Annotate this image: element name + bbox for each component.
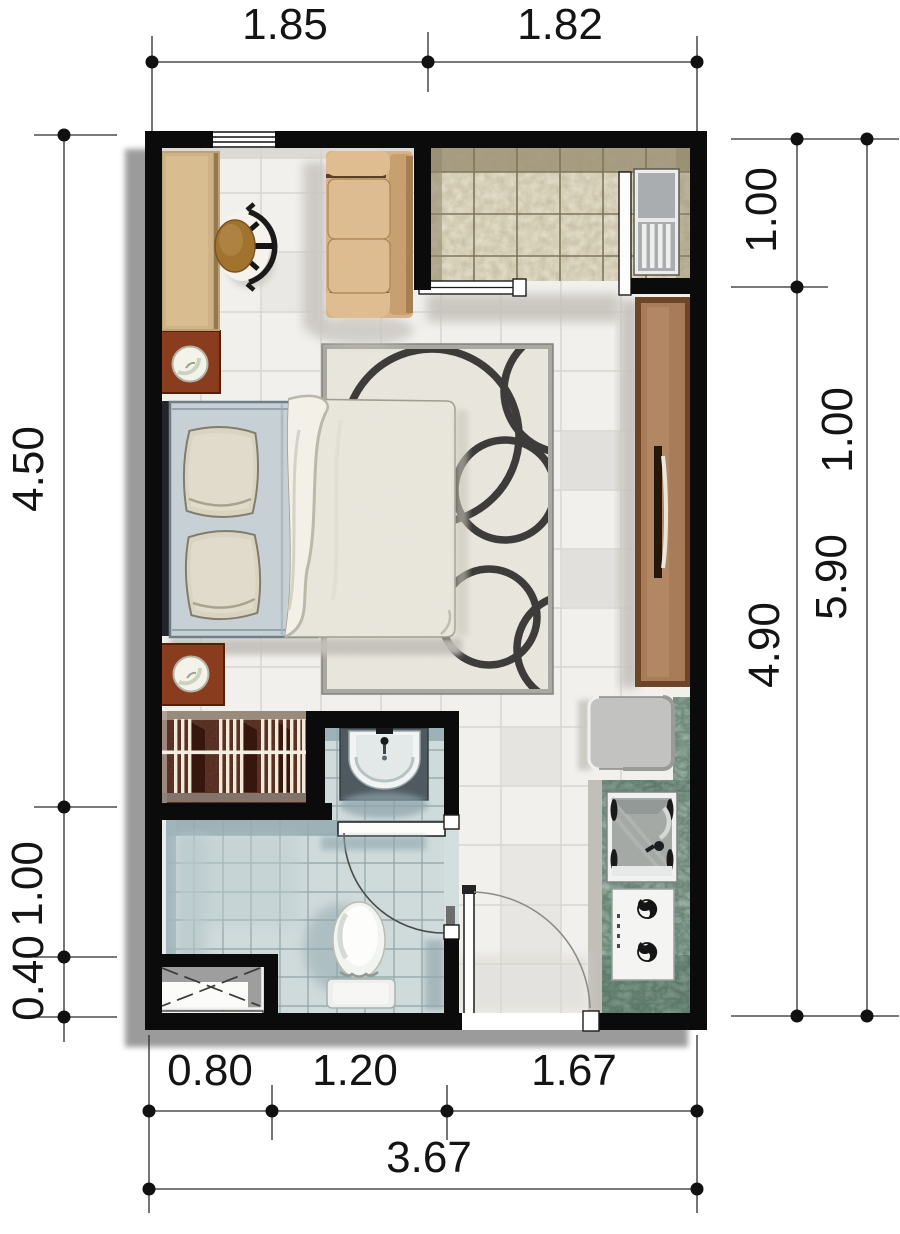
svg-text:0.80: 0.80 [167, 1046, 253, 1095]
svg-text:1.67: 1.67 [531, 1046, 617, 1095]
svg-text:1.20: 1.20 [312, 1046, 398, 1095]
svg-text:5.90: 5.90 [807, 534, 856, 620]
svg-text:3.67: 3.67 [386, 1133, 472, 1182]
svg-text:4.50: 4.50 [4, 426, 53, 512]
svg-text:0.40: 0.40 [4, 935, 53, 1021]
svg-text:1.00: 1.00 [3, 841, 52, 927]
svg-text:1.00: 1.00 [737, 167, 786, 253]
svg-text:4.90: 4.90 [740, 602, 789, 688]
svg-text:1.00: 1.00 [813, 387, 862, 473]
svg-text:1.85: 1.85 [242, 0, 328, 49]
svg-text:1.82: 1.82 [517, 0, 603, 49]
